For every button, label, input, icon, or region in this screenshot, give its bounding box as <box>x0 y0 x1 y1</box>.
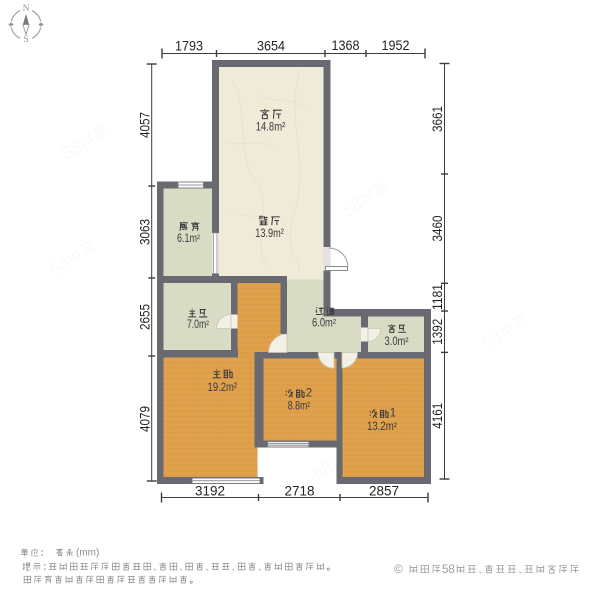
svg-text:3661: 3661 <box>430 106 445 132</box>
svg-text:8.8m²: 8.8m² <box>288 401 311 413</box>
svg-text:4057: 4057 <box>138 112 153 138</box>
svg-text:(mm): (mm) <box>76 548 99 559</box>
svg-text:3192: 3192 <box>195 484 225 499</box>
svg-text:13.9m²: 13.9m² <box>255 226 284 240</box>
svg-text:2655: 2655 <box>138 304 153 330</box>
svg-text:8: 8 <box>448 562 455 576</box>
svg-text:1181: 1181 <box>430 284 445 310</box>
svg-text:1368: 1368 <box>332 38 360 53</box>
svg-text:1392: 1392 <box>430 319 445 345</box>
svg-text:1952: 1952 <box>382 38 410 53</box>
svg-text:2718: 2718 <box>285 484 315 499</box>
svg-text:19.2m²: 19.2m² <box>208 380 238 394</box>
svg-text:3460: 3460 <box>430 216 445 242</box>
svg-text:14.8m²: 14.8m² <box>256 120 286 134</box>
svg-text:S: S <box>23 35 28 45</box>
svg-text:4161: 4161 <box>430 403 445 429</box>
svg-text:3654: 3654 <box>257 39 285 54</box>
svg-text:1: 1 <box>390 408 396 420</box>
svg-text:1793: 1793 <box>175 39 203 54</box>
svg-text:4079: 4079 <box>138 406 153 432</box>
svg-text:©: © <box>394 562 403 576</box>
svg-text:7.0m²: 7.0m² <box>187 319 209 331</box>
svg-text:2: 2 <box>306 388 312 400</box>
svg-text:6.1m²: 6.1m² <box>177 233 200 245</box>
svg-text:3063: 3063 <box>138 219 153 245</box>
svg-text:3.0m²: 3.0m² <box>385 336 409 348</box>
svg-text:N: N <box>23 4 30 14</box>
svg-text:13.2m²: 13.2m² <box>367 421 397 433</box>
svg-text:2857: 2857 <box>369 484 399 499</box>
svg-text:6.0m²: 6.0m² <box>312 317 336 329</box>
